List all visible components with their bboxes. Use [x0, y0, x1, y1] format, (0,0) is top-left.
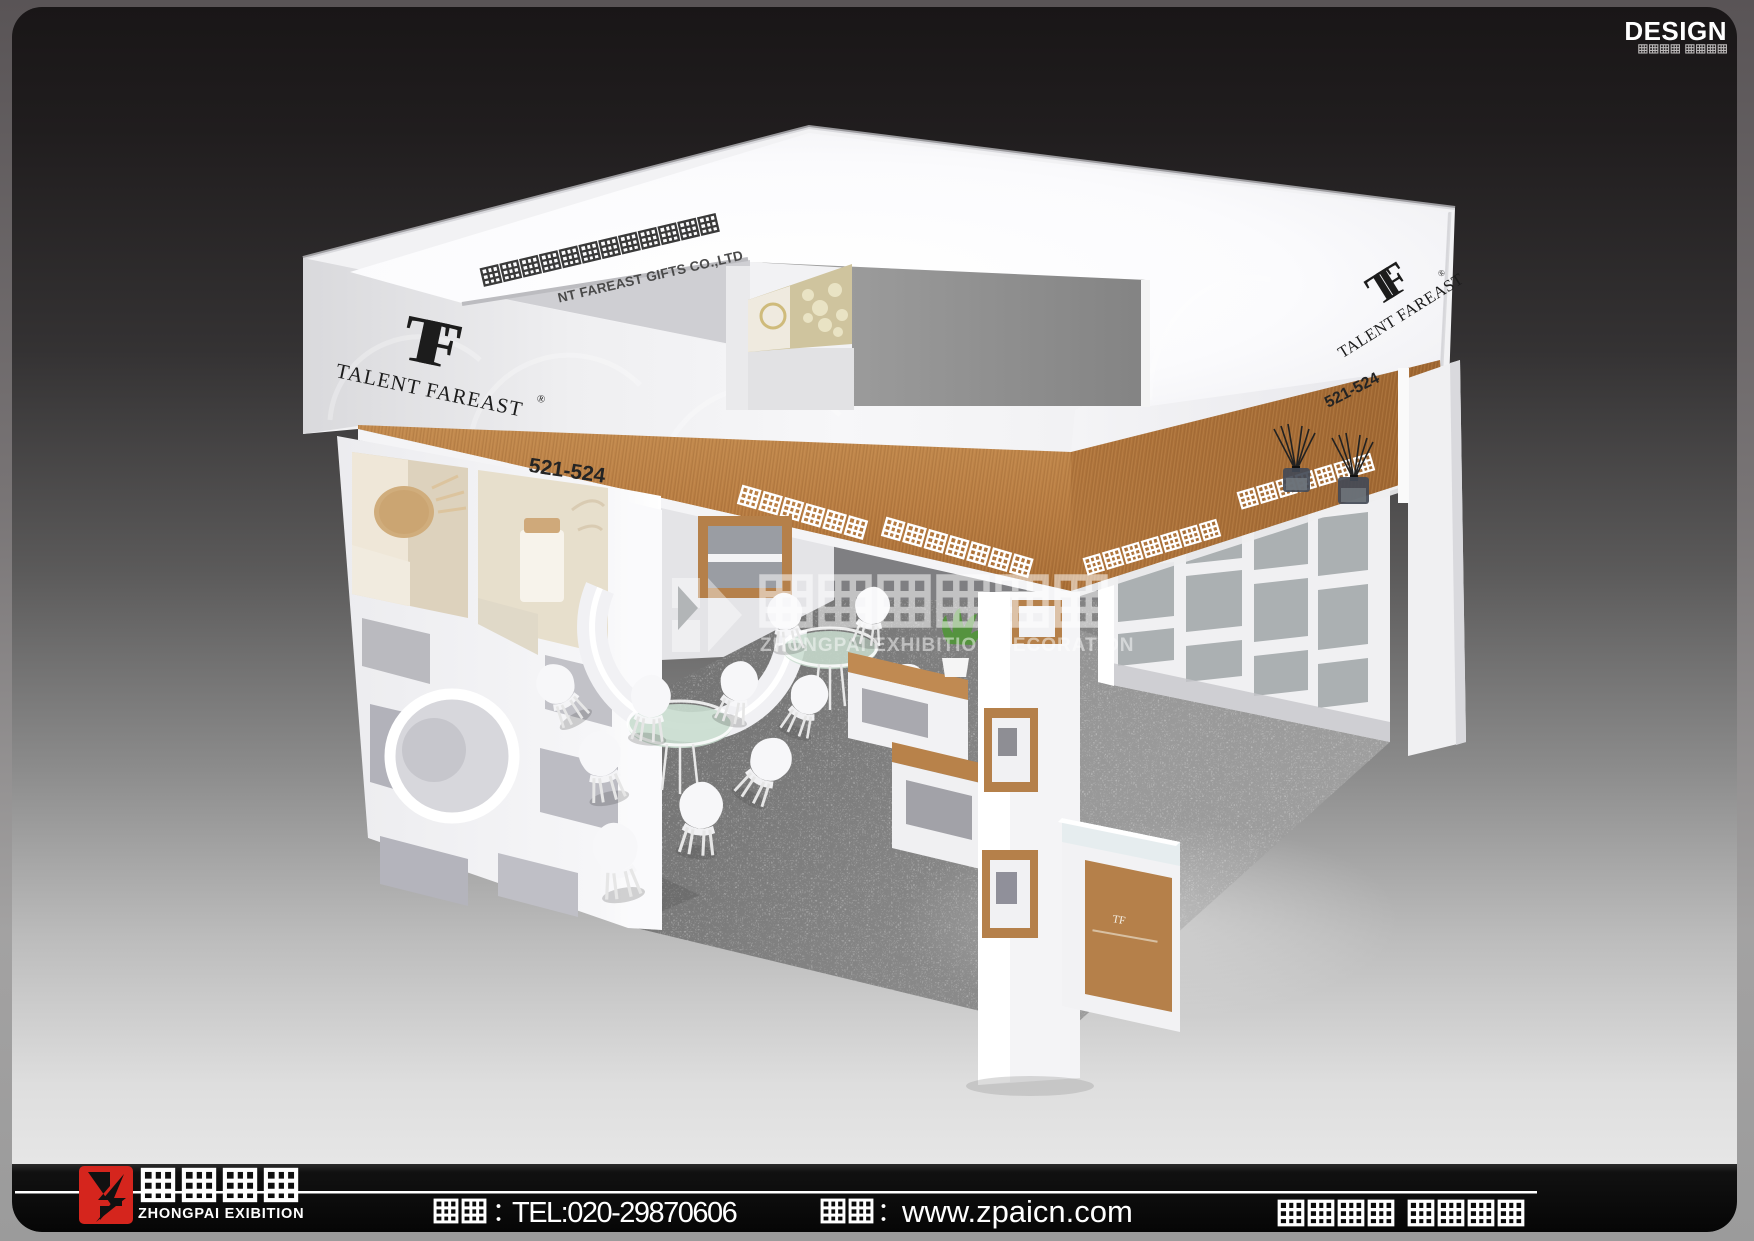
svg-text:TF: TF: [1111, 913, 1126, 927]
svg-text:www.zpaicn.com: www.zpaicn.com: [901, 1194, 1133, 1229]
svg-text:ZHONGPAI EXIBITION: ZHONGPAI EXIBITION: [138, 1206, 304, 1222]
svg-text:DESIGN: DESIGN: [1624, 16, 1727, 46]
svg-text:TEL:020-29870606: TEL:020-29870606: [512, 1197, 737, 1229]
svg-text:ZHONGPAI EXHIBITION DECORATION: ZHONGPAI EXHIBITION DECORATION: [760, 635, 1134, 656]
svg-text:：: ：: [877, 1197, 903, 1227]
